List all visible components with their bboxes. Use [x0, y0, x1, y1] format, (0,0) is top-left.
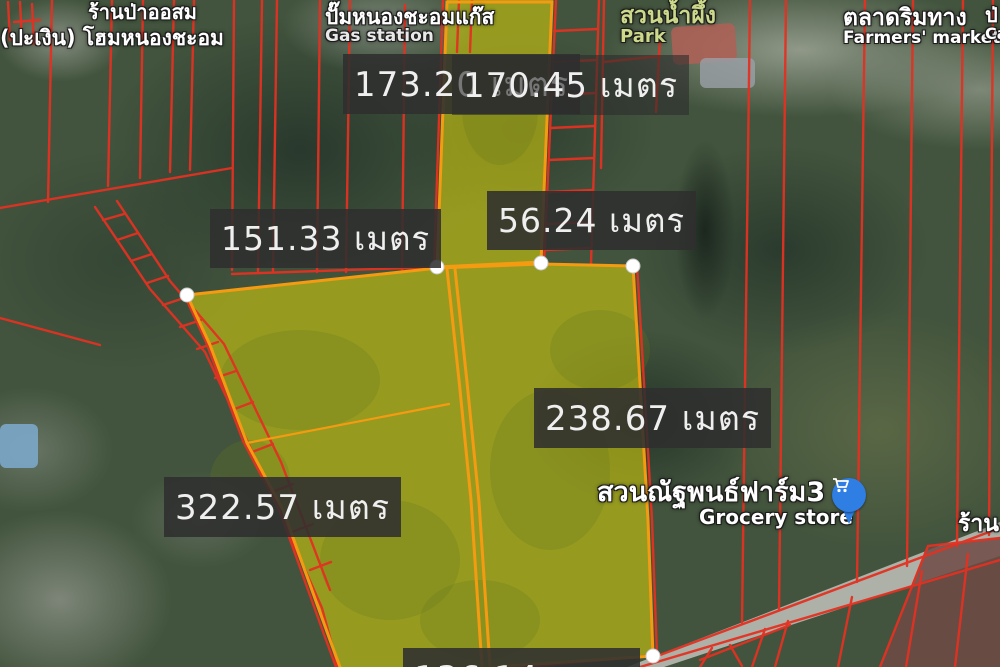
satellite-map[interactable]: ร้านป่าออสม (ปะเงิน) โฮมหนองชะอม ปั๊มหนอ…: [0, 0, 1000, 667]
poi-park-en: Park: [620, 28, 716, 47]
maroon-field: [880, 537, 1000, 667]
poi-shop-right-partial: ร้าน: [958, 512, 999, 536]
vertex-dot: [626, 259, 640, 273]
poi-shop-topleft-thai: ร้านป่าออสม: [88, 0, 197, 24]
shopping-cart-icon: [832, 478, 850, 494]
vertex-dot: [180, 288, 194, 302]
poi-gas-station: ปั๊มหนองชะอมแก๊ส Gas station: [325, 6, 494, 46]
vertex-dot: [534, 256, 548, 270]
measurement-value: 238.67 เมตร: [545, 399, 760, 439]
poi-farmers-market-en: Farmers' market: [843, 30, 1000, 48]
poi-shop-topleft-thai2: (ปะเงิน) โฮมหนองชะอม: [0, 26, 224, 50]
poi-shop-right-thai: ร้าน: [958, 511, 999, 537]
vertex-dot: [646, 649, 660, 663]
measurement-value: 56.24 เมตร: [498, 201, 685, 240]
measurement-label-bottom-partial: 136.14 เมตร: [403, 648, 640, 667]
measurement-label-mid: 56.24 เมตร: [487, 191, 696, 250]
poi-topright-partial: ป่ Ca: [985, 5, 1000, 43]
measurement-label-left: 151.33 เมตร: [210, 209, 441, 268]
measurement-label-top-b: 170.45 เมตร: [452, 55, 689, 115]
poi-grocery-thai: สวนณัฐพนธ์ฟาร์ม3: [597, 477, 825, 508]
poi-grocery: สวนณัฐพนธ์ฟาร์ม3 Grocery store: [597, 479, 853, 528]
poi-topright-partial-en: Ca: [985, 26, 1000, 43]
pin-head: [832, 478, 866, 512]
measurement-value: 151.33 เมตร: [221, 219, 430, 258]
grocery-store-pin-icon[interactable]: [832, 478, 866, 528]
poi-shop-topleft-line1: ร้านป่าออสม: [88, 2, 197, 23]
measurement-value: 136.14 เมตร: [414, 659, 629, 667]
measurement-value: 170.45 เมตร: [463, 66, 678, 106]
poi-park: สวนน้ำผึ้ง Park: [620, 4, 716, 47]
poi-shop-topleft-line2: (ปะเงิน) โฮมหนองชะอม: [0, 27, 224, 49]
measurement-label-right: 238.67 เมตร: [534, 388, 771, 448]
measurement-label-bottom-left: 322.57 เมตร: [164, 477, 401, 537]
measurement-value: 322.57 เมตร: [175, 488, 390, 528]
poi-gas-station-en: Gas station: [325, 28, 494, 46]
poi-farmers-market: ตลาดริมทาง Farmers' market: [843, 6, 1000, 48]
poi-grocery-en: Grocery store: [699, 507, 853, 528]
